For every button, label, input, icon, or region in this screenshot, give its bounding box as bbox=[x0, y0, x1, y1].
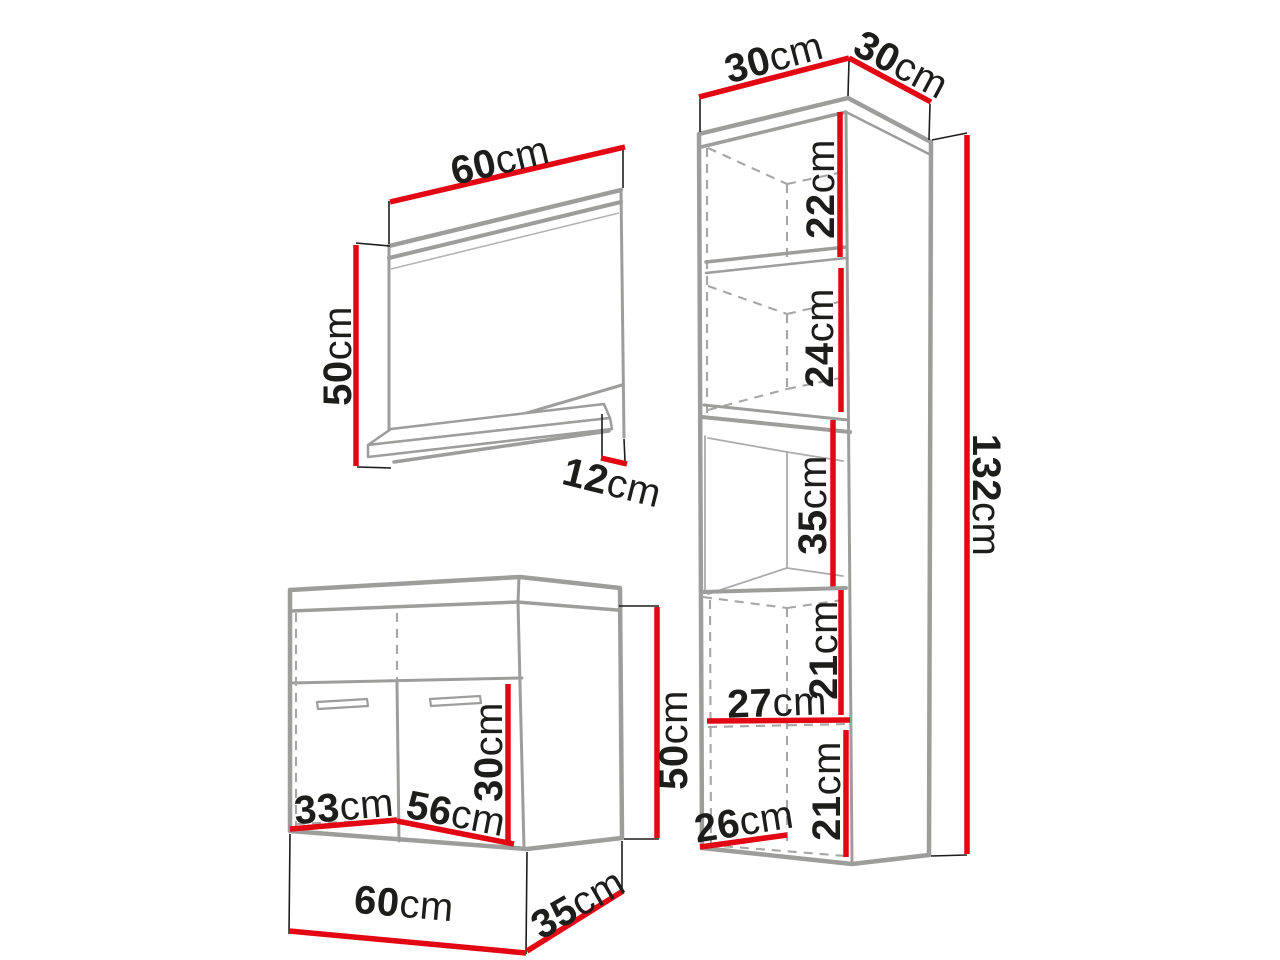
vanity-height-label: 50cm bbox=[652, 690, 696, 790]
extension-line bbox=[357, 467, 391, 468]
tall-total-height-label: 132cm bbox=[964, 434, 1008, 557]
extension-line bbox=[624, 439, 625, 461]
mirror-height-dimension: 50cm bbox=[316, 243, 391, 468]
tall-upper-compartment-label: 22cm bbox=[799, 139, 843, 239]
tall-cabinet: 22cm 24cm 35cm bbox=[691, 22, 1008, 864]
extension-line bbox=[289, 834, 290, 934]
mirror-unit: 60cm 50cm 12cm bbox=[316, 128, 666, 516]
tall-top-depth-label: 30cm bbox=[847, 22, 956, 108]
extension-line bbox=[932, 133, 967, 140]
vanity-depth-dimension: 35cm bbox=[524, 841, 632, 951]
vanity-left-door-handle bbox=[317, 699, 368, 709]
vanity-depth-label: 35cm bbox=[524, 860, 632, 948]
vanity-width-label: 60cm bbox=[352, 878, 455, 931]
extension-line bbox=[929, 104, 930, 140]
tall-niche-label: 35cm bbox=[791, 455, 835, 555]
vanity-door-inner-width-dimension: 33cm bbox=[290, 781, 397, 834]
mirror-height-label: 50cm bbox=[316, 306, 360, 406]
extension-line bbox=[526, 852, 527, 954]
vanity-door-divider bbox=[397, 683, 399, 841]
extension-line bbox=[848, 60, 849, 96]
vanity-door-inner-width-label: 33cm bbox=[292, 781, 395, 834]
vanity-top-corner-edge bbox=[518, 577, 519, 602]
extension-line bbox=[356, 243, 390, 246]
mirror-width-label: 60cm bbox=[446, 128, 553, 194]
vanity-cabinet: 30cm 33cm 56cm 60cm 35cm bbox=[289, 577, 696, 954]
tall-lower-compartment2-label: 21cm bbox=[805, 741, 849, 841]
mirror-shelf-depth-label: 12cm bbox=[558, 450, 666, 517]
diagram-canvas: 60cm 50cm 12cm 30cm bbox=[0, 0, 1280, 960]
vanity-width-dimension: 60cm bbox=[289, 834, 527, 954]
furniture-dimension-diagram: 60cm 50cm 12cm 30cm bbox=[0, 0, 1280, 960]
dimension-line-red bbox=[289, 931, 526, 953]
vanity-inner-height-label: 30cm bbox=[467, 702, 511, 802]
tall-lower-compartment2-dimension: 21cm bbox=[805, 730, 849, 857]
tall-inner-width-label: 27cm bbox=[726, 679, 827, 726]
tall-top-width-label: 30cm bbox=[720, 24, 828, 92]
vanity-height-dimension: 50cm bbox=[619, 606, 696, 839]
extension-line bbox=[931, 855, 967, 856]
tall-total-height-dimension: 132cm bbox=[931, 133, 1008, 856]
tall-middle-compartment-label: 24cm bbox=[798, 288, 842, 388]
